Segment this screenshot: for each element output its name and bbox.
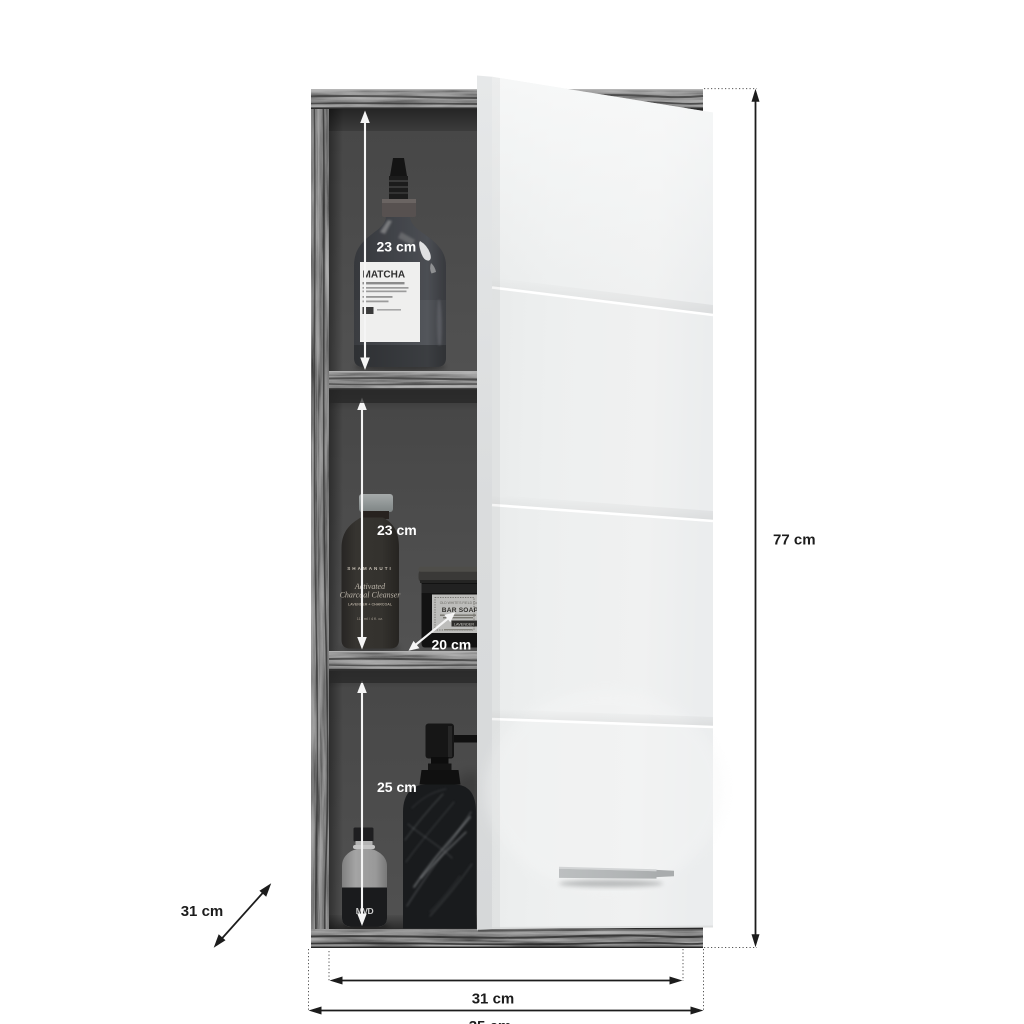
svg-text:31 cm: 31 cm [181, 903, 224, 920]
svg-text:LAVENDER: LAVENDER [454, 622, 474, 626]
svg-text:SHAMANUTI: SHAMANUTI [347, 566, 393, 571]
svg-text:23 cm: 23 cm [377, 522, 417, 538]
svg-text:OLD WHITE'S FIELD Co.: OLD WHITE'S FIELD Co. [440, 601, 479, 605]
svg-text:35 cm: 35 cm [469, 1018, 512, 1024]
svg-text:117 ml / 4 fl. oz.: 117 ml / 4 fl. oz. [357, 617, 384, 621]
svg-text:25 cm: 25 cm [377, 779, 417, 795]
svg-text:77 cm: 77 cm [773, 532, 816, 549]
svg-text:MATCHA: MATCHA [363, 270, 406, 281]
svg-text:20 cm: 20 cm [432, 637, 472, 653]
svg-text:BAR SOAP: BAR SOAP [442, 607, 479, 614]
svg-text:31 cm: 31 cm [472, 991, 515, 1008]
svg-text:LAVENDER + CHARCOAL: LAVENDER + CHARCOAL [348, 603, 393, 607]
svg-text:23 cm: 23 cm [377, 239, 417, 255]
svg-text:Charcoal Cleanser: Charcoal Cleanser [340, 591, 402, 600]
